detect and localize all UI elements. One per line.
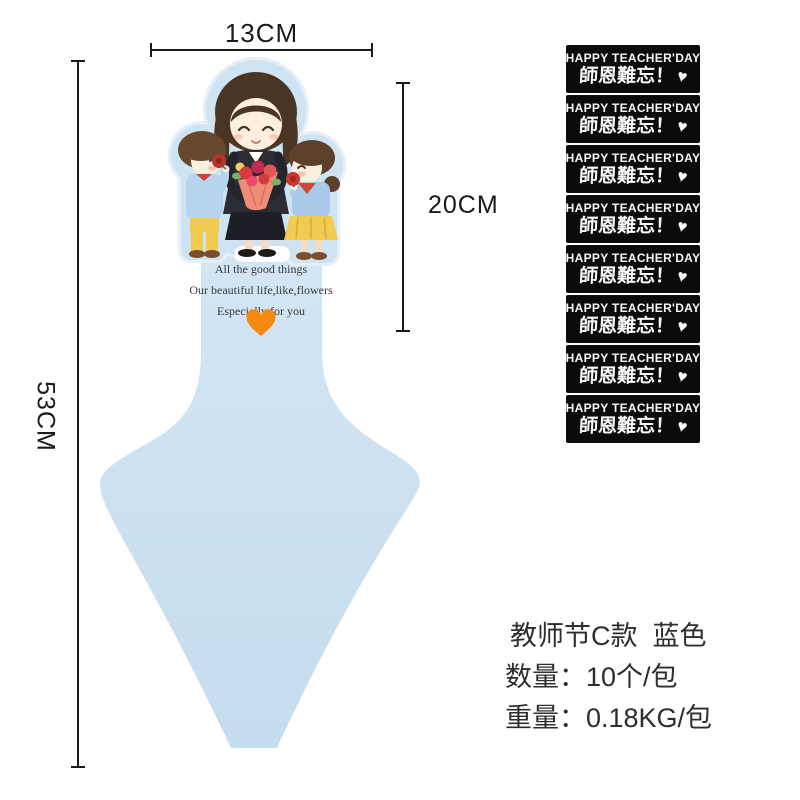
sticker-text-en: HAPPY TEACHER'DAY (566, 401, 701, 416)
white-heart-icon: ♥ (674, 365, 689, 389)
white-heart-icon: ♥ (674, 165, 689, 189)
teacher-day-sticker: HAPPY TEACHER'DAY 師恩難忘！ ♥ (566, 245, 700, 293)
teacher-day-sticker: HAPPY TEACHER'DAY 師恩難忘！ ♥ (566, 195, 700, 243)
sticker-text-en: HAPPY TEACHER'DAY (566, 101, 701, 116)
width-dimension-line (150, 49, 373, 51)
teacher-day-sticker: HAPPY TEACHER'DAY 師恩難忘！ ♥ (566, 145, 700, 193)
handle-dimension-line (402, 82, 404, 332)
sticker-text-cn: 師恩難忘！ (578, 266, 674, 288)
width-dimension-label: 13CM (150, 18, 373, 49)
message-line-2: Our beautiful life,like,flowers (189, 283, 333, 297)
dimension-tick (150, 43, 152, 57)
sticker-text-cn: 師恩難忘！ (578, 116, 674, 138)
spec-style-color: 教师节C款 蓝色 (505, 616, 785, 657)
dimension-cap (396, 330, 410, 332)
sticker-text-cn: 師恩難忘！ (578, 316, 674, 338)
sticker-text-cn: 師恩難忘！ (578, 66, 674, 88)
product-listing-image: All the good things Our beautiful life,l… (0, 0, 800, 800)
dimension-tick (371, 43, 373, 57)
dimension-cap (396, 82, 410, 84)
dimension-cap (71, 766, 85, 768)
total-dimension-line (77, 60, 79, 768)
spec-quantity: 数量：10个/包 (505, 657, 785, 698)
sticker-text-cn: 師恩難忘！ (578, 166, 674, 188)
teacher-day-sticker: HAPPY TEACHER'DAY 師恩難忘！ ♥ (566, 45, 700, 93)
white-heart-icon: ♥ (674, 415, 689, 439)
sticker-text-en: HAPPY TEACHER'DAY (566, 201, 701, 216)
teacher-day-sticker: HAPPY TEACHER'DAY 師恩難忘！ ♥ (566, 395, 700, 443)
white-heart-icon: ♥ (674, 315, 689, 339)
sticker-text-en: HAPPY TEACHER'DAY (566, 301, 701, 316)
dimension-cap (71, 60, 85, 62)
message-line-1: All the good things (215, 262, 308, 276)
product-specs: 教师节C款 蓝色 数量：10个/包 重量：0.18KG/包 (505, 616, 785, 739)
white-heart-icon: ♥ (674, 65, 689, 89)
sticker-text-cn: 師恩難忘！ (578, 216, 674, 238)
spec-weight: 重量：0.18KG/包 (505, 698, 785, 739)
total-dimension-label: 53CM (31, 377, 60, 457)
sticker-text-en: HAPPY TEACHER'DAY (566, 151, 701, 166)
sticker-text-en: HAPPY TEACHER'DAY (566, 51, 701, 66)
white-heart-icon: ♥ (674, 265, 689, 289)
white-heart-icon: ♥ (674, 215, 689, 239)
sticker-text-cn: 師恩難忘！ (578, 416, 674, 438)
sticker-text-cn: 師恩難忘！ (578, 366, 674, 388)
handle-dimension-label: 20CM (428, 191, 499, 220)
teacher-day-sticker: HAPPY TEACHER'DAY 師恩難忘！ ♥ (566, 295, 700, 343)
sticker-text-en: HAPPY TEACHER'DAY (566, 251, 701, 266)
sticker-stack: HAPPY TEACHER'DAY 師恩難忘！ ♥ HAPPY TEACHER'… (566, 45, 700, 445)
teacher-day-sticker: HAPPY TEACHER'DAY 師恩難忘！ ♥ (566, 95, 700, 143)
teacher-day-sticker: HAPPY TEACHER'DAY 師恩難忘！ ♥ (566, 345, 700, 393)
sticker-text-en: HAPPY TEACHER'DAY (566, 351, 701, 366)
white-heart-icon: ♥ (674, 115, 689, 139)
